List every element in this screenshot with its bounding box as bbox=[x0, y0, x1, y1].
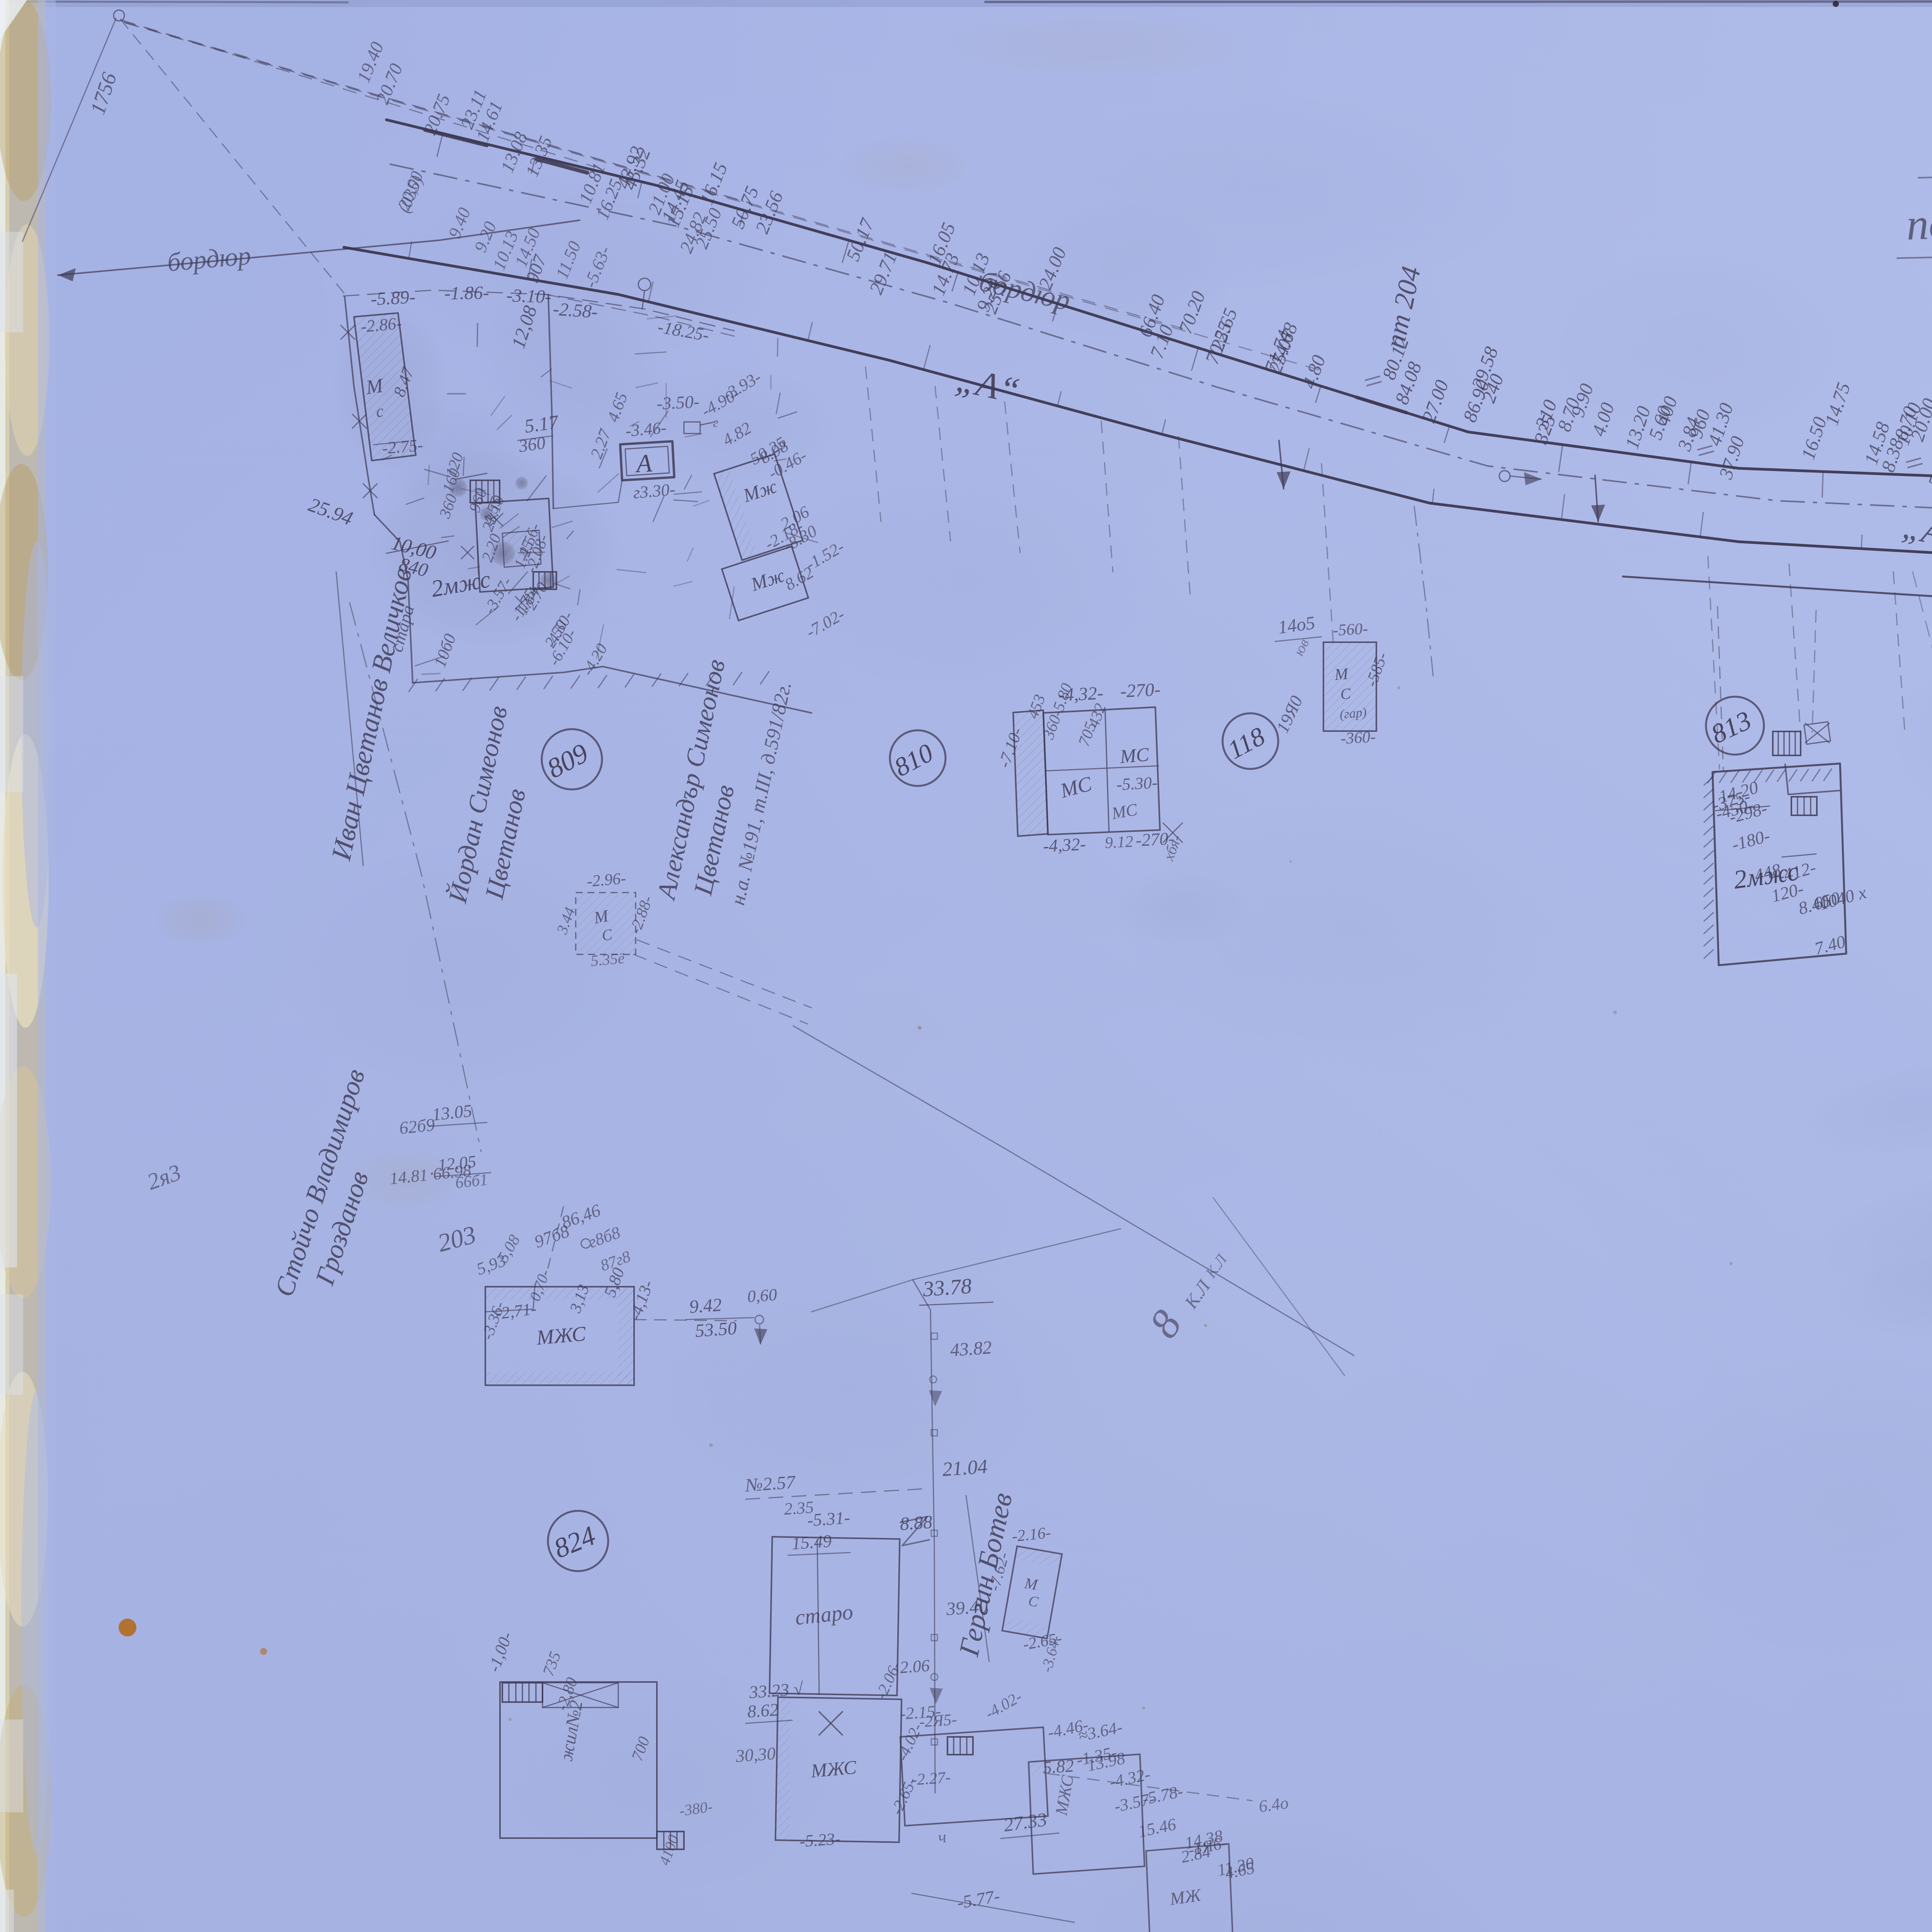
svg-text:53.50: 53.50 bbox=[694, 1318, 737, 1341]
svg-text:33.78: 33.78 bbox=[922, 1274, 973, 1301]
svg-text:С: С bbox=[1340, 685, 1352, 703]
svg-text:-5.23-: -5.23- bbox=[799, 1829, 841, 1851]
svg-text:(гар): (гар) bbox=[1339, 705, 1367, 722]
svg-text:9.42: 9.42 bbox=[689, 1294, 722, 1317]
svg-text:г3.30-: г3.30- bbox=[633, 480, 676, 502]
svg-text:МЖС: МЖС bbox=[810, 1756, 857, 1782]
svg-text:№2.57: №2.57 bbox=[744, 1472, 797, 1496]
svg-text:15.49: 15.49 bbox=[791, 1531, 832, 1553]
svg-text:-270-: -270- bbox=[1120, 679, 1161, 702]
svg-text:М: М bbox=[1333, 665, 1350, 684]
svg-text:0,60: 0,60 bbox=[747, 1285, 777, 1306]
svg-text:-2.27-: -2.27- bbox=[911, 1769, 951, 1789]
svg-text:21.04: 21.04 bbox=[942, 1456, 988, 1481]
svg-text:-2.96-: -2.96- bbox=[586, 869, 627, 891]
svg-text:39.40: 39.40 bbox=[945, 1596, 988, 1619]
svg-text:2.35: 2.35 bbox=[783, 1498, 814, 1519]
svg-text:-1.86-: -1.86- bbox=[444, 282, 489, 304]
svg-text:-3.10-: -3.10- bbox=[506, 285, 552, 307]
svg-text:30,30: 30,30 bbox=[735, 1743, 776, 1766]
svg-text:-560-: -560- bbox=[1332, 620, 1368, 639]
svg-text:5.35ё: 5.35ё bbox=[590, 949, 626, 969]
svg-text:-2.58-: -2.58- bbox=[552, 299, 598, 322]
svg-text:-5.30-: -5.30- bbox=[1116, 773, 1158, 794]
svg-text:А: А bbox=[634, 449, 653, 478]
svg-text:13.05: 13.05 bbox=[431, 1100, 473, 1124]
svg-text:-360-: -360- bbox=[1340, 728, 1376, 748]
svg-text:33.23 √: 33.23 √ bbox=[748, 1679, 804, 1702]
svg-text:-2Я5-: -2Я5- bbox=[918, 1711, 957, 1731]
svg-text:-3.50-: -3.50- bbox=[656, 391, 700, 413]
svg-text:-4,32-: -4,32- bbox=[1043, 834, 1087, 856]
svg-text:8.62: 8.62 bbox=[747, 1699, 779, 1721]
svg-text:43.82: 43.82 bbox=[949, 1337, 992, 1361]
svg-text:9.12: 9.12 bbox=[1104, 833, 1134, 852]
svg-text:8.88: 8.88 bbox=[899, 1512, 933, 1534]
svg-text:МС: МС bbox=[1119, 743, 1150, 767]
svg-text:МЖС: МЖС bbox=[535, 1322, 587, 1349]
